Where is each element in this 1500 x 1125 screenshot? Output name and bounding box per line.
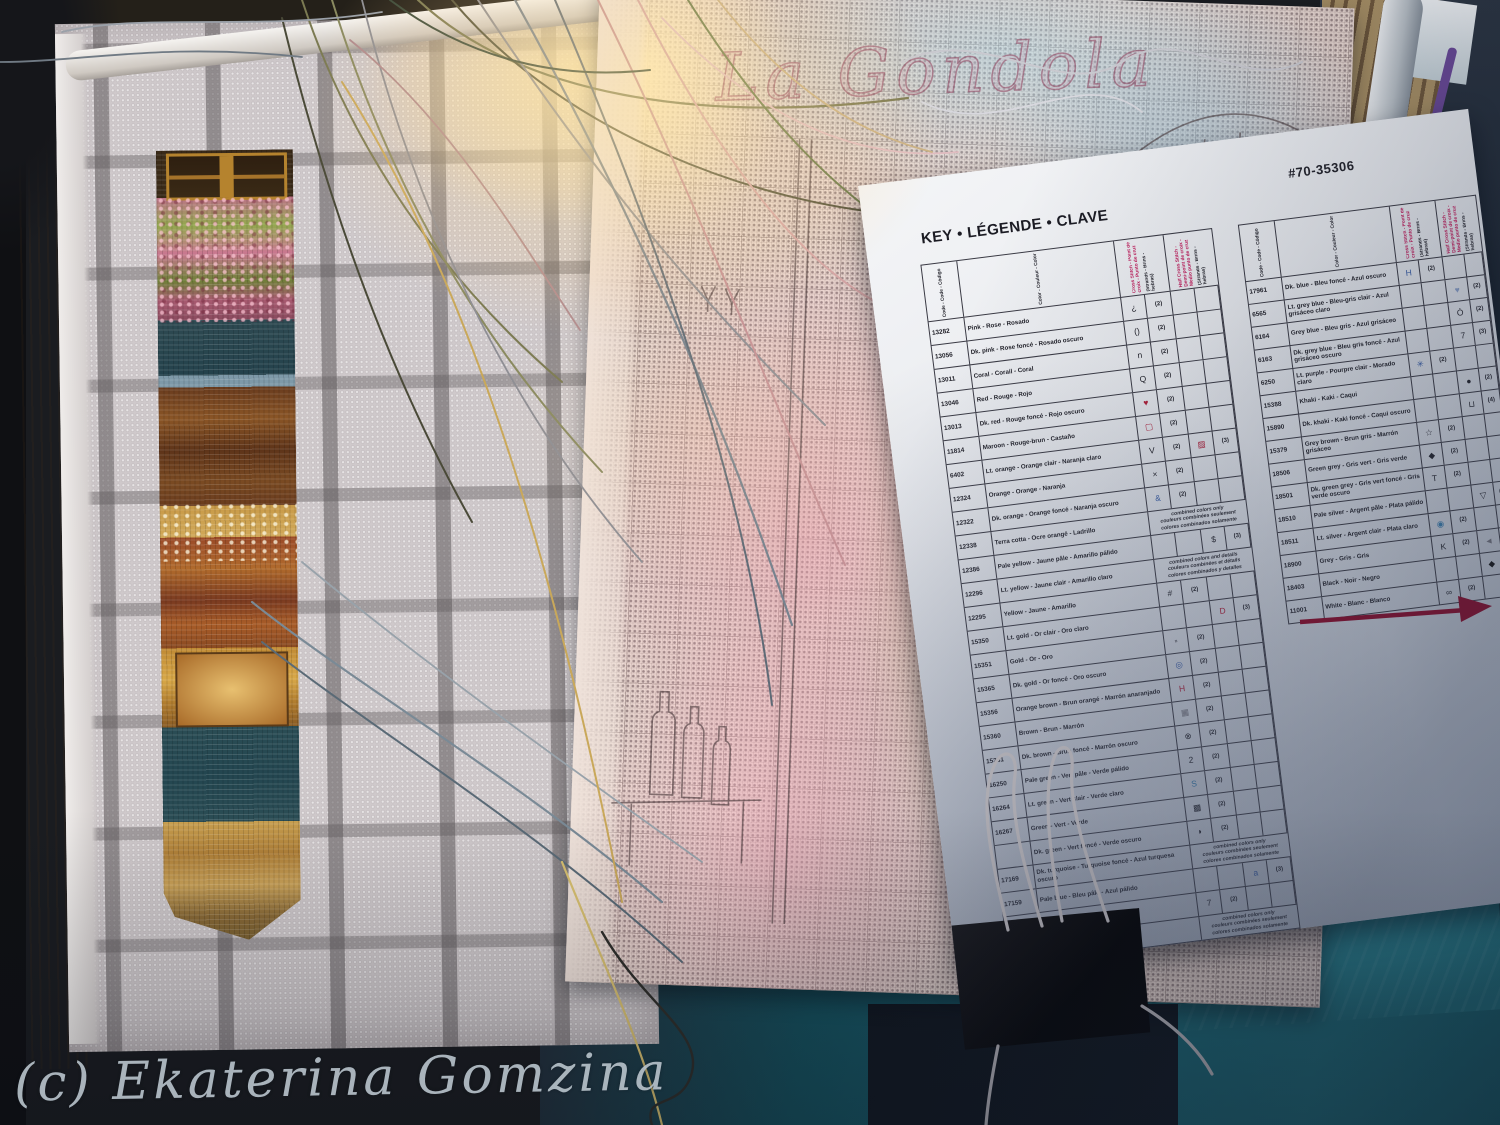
header-half-cross: Half Cross Stitch - Demi-point de croix … [1435,196,1482,257]
key-table-right: Code - Code - Código Color - Couleur - C… [1238,195,1500,625]
key-table-left: Code - Code - Código Color - Couleur - C… [920,228,1300,965]
stitched-shop-window [175,651,289,727]
header-half-cross: Half Cross Stitch - Demi-point de croix … [1164,229,1219,291]
embroidery-panel [156,149,301,940]
stitched-window [165,153,287,201]
header-cross-stitch: Cross Stitch - Point de croix - Punto de… [1390,201,1443,262]
photo-scene: La Gondola [0,0,1500,1125]
stitched-flower-box [160,501,298,562]
stitched-flowers [156,195,294,323]
watermark: (c) Ekaterina Gomzina [14,1042,670,1113]
binder-clip [947,908,1151,1051]
key-sheet: #70-35306 KEY • LÉGENDE • CLAVE Code - C… [858,109,1500,972]
product-number: #70-35306 [1287,158,1355,181]
header-cross-stitch: Cross Stitch - Point de croix - Punto de… [1114,235,1171,297]
key-title: KEY • LÉGENDE • CLAVE [920,207,1109,247]
